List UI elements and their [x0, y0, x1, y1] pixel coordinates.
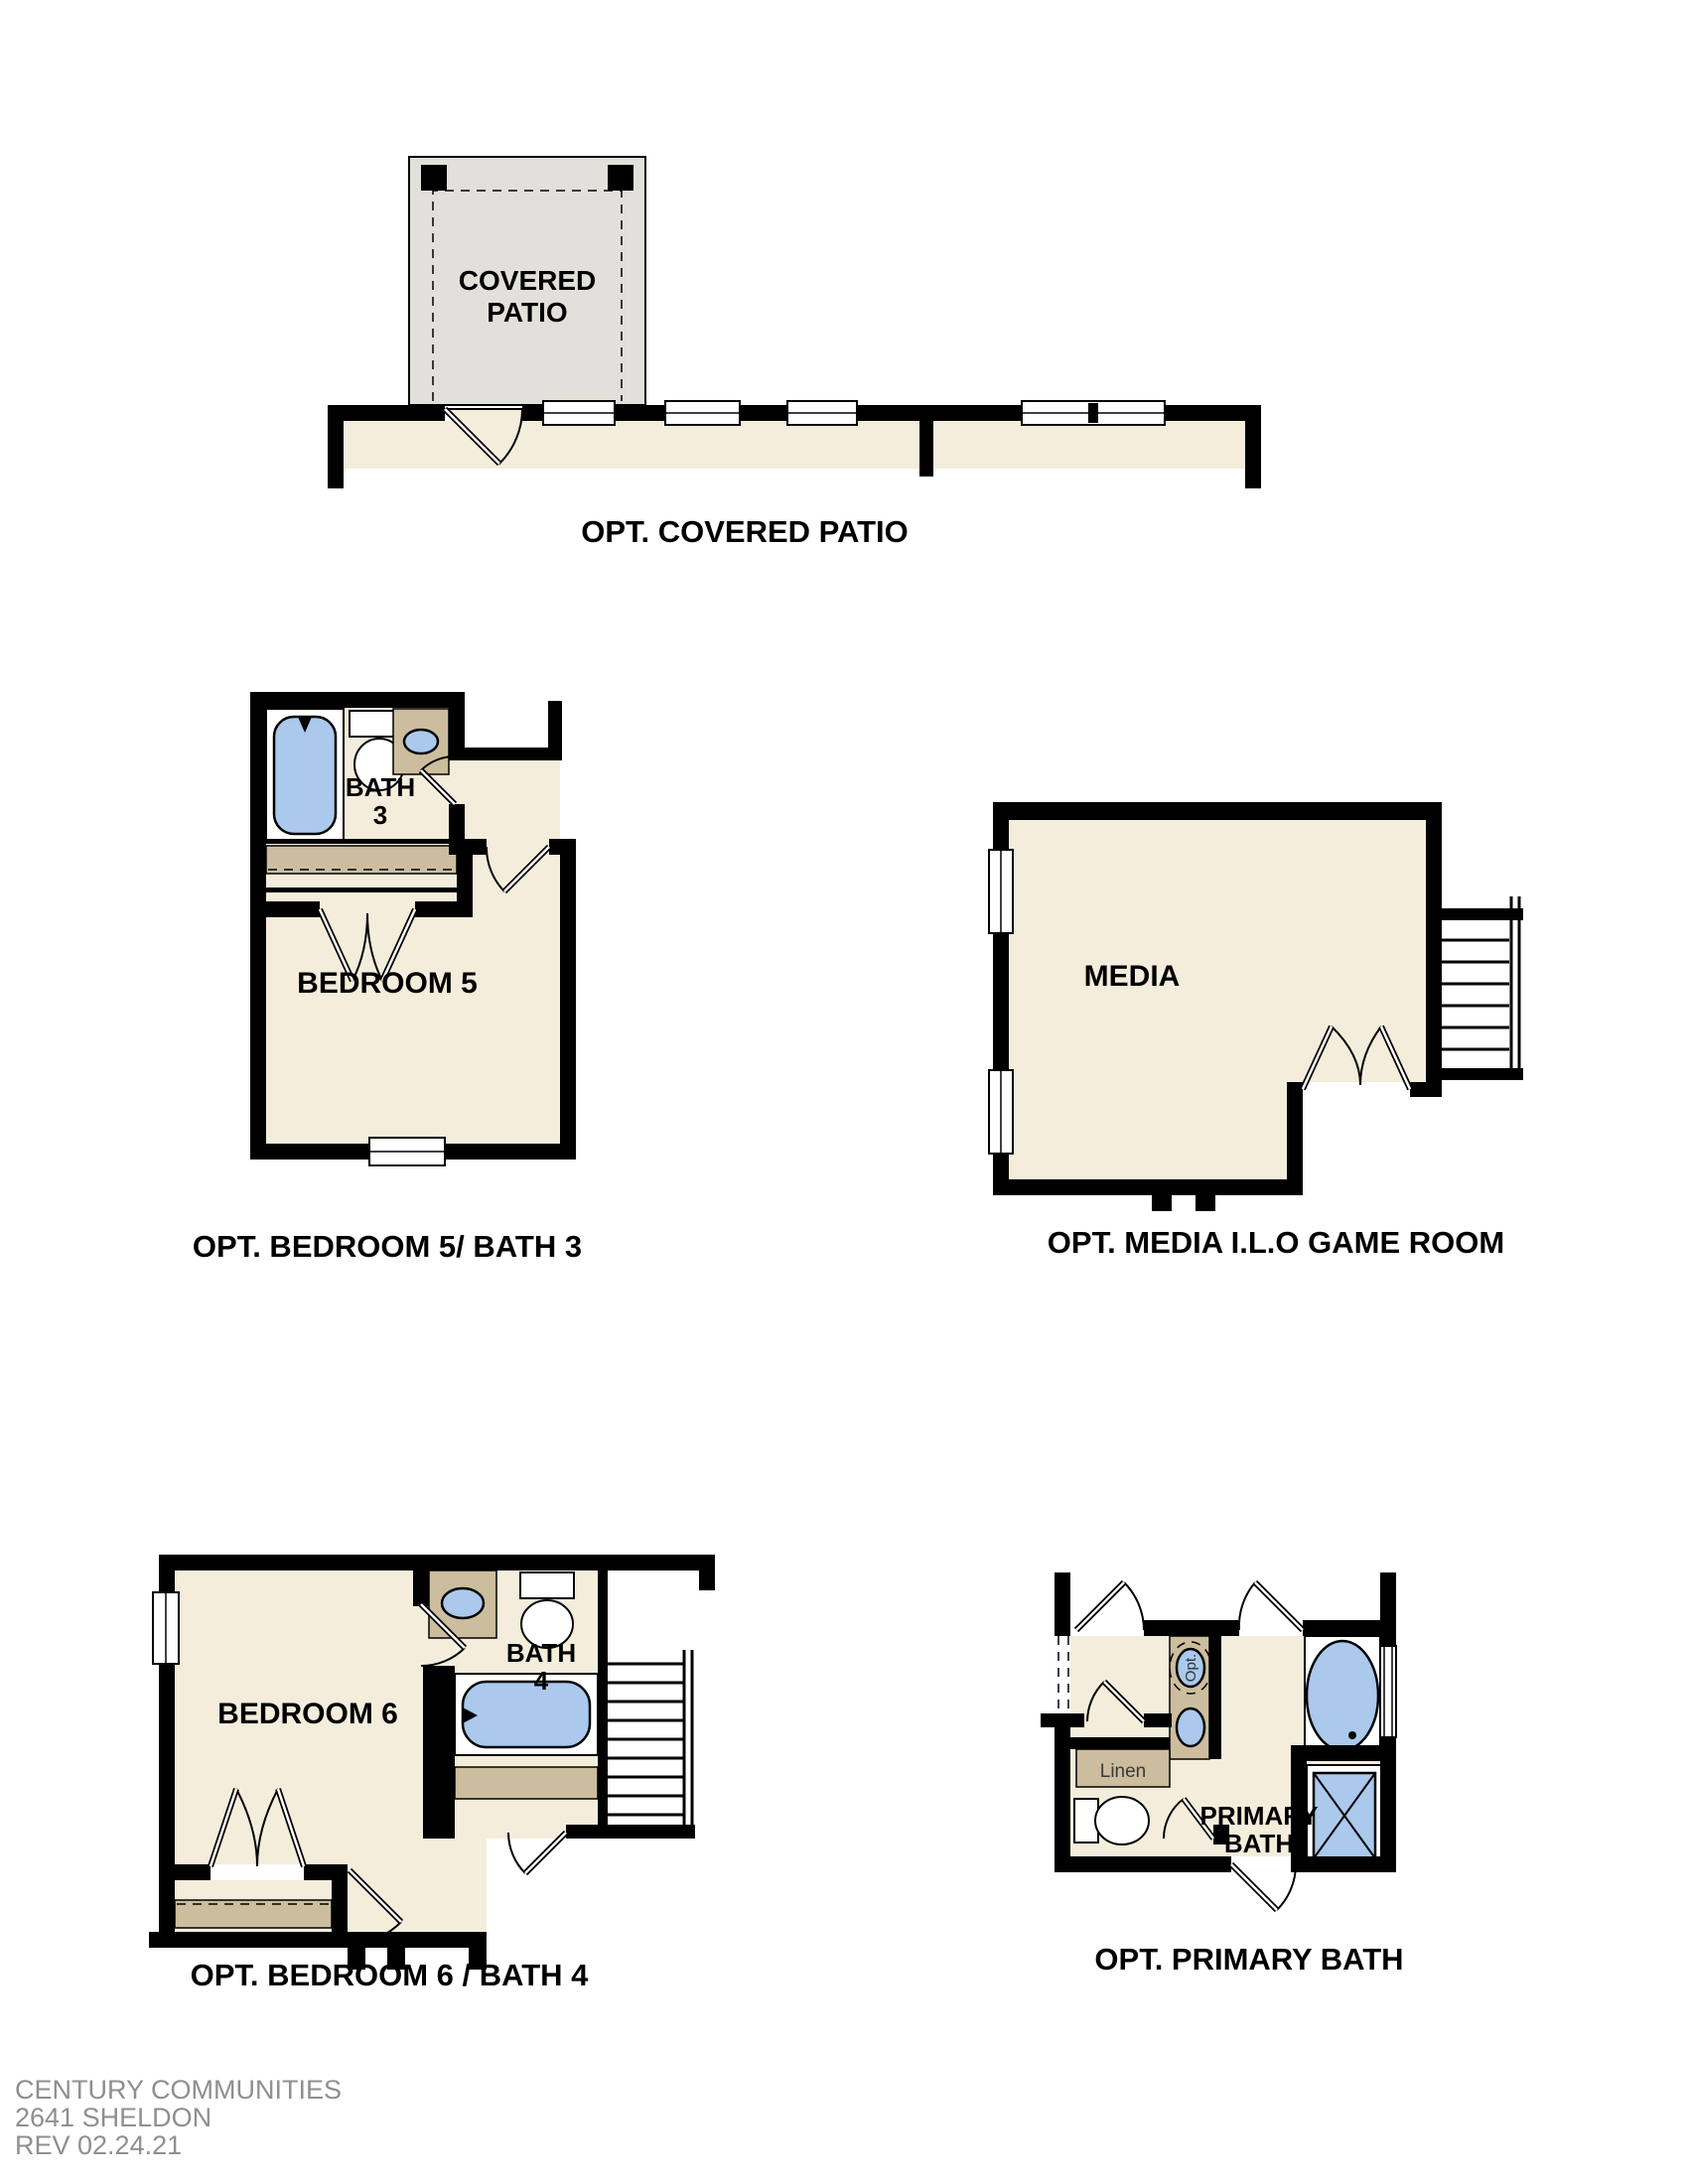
window — [543, 401, 615, 425]
opt-sink-label: Opt. — [1183, 1654, 1199, 1682]
window — [1380, 1646, 1396, 1737]
door-arc — [1239, 1582, 1303, 1630]
toilet-icon — [1074, 1797, 1149, 1844]
room-label-primary-bath-line2: BATH — [1224, 1829, 1294, 1858]
title-block: CENTURY COMMUNITIES 2641 SHELDON REV 02.… — [15, 2075, 342, 2160]
window — [787, 401, 857, 425]
sink-icon — [429, 1570, 496, 1638]
floor-plan-canvas: COVERED PATIO OPT. COVERED PATIO — [0, 0, 1688, 2184]
caption-covered-patio: OPT. COVERED PATIO — [581, 514, 909, 549]
bathtub-icon — [455, 1674, 598, 1755]
room-label-covered-patio-line2: PATIO — [487, 297, 567, 328]
patio-post-right — [608, 165, 633, 191]
window — [989, 1070, 1013, 1154]
wall-divider — [919, 405, 933, 477]
room-label-media: MEDIA — [1084, 960, 1181, 993]
stairs-icon — [608, 1650, 695, 1839]
window — [369, 1138, 445, 1165]
door-arc — [1231, 1864, 1296, 1910]
patio-post-left — [421, 165, 447, 191]
caption-bedroom5-bath3: OPT. BEDROOM 5/ BATH 3 — [193, 1229, 582, 1264]
stairs-icon — [1442, 896, 1523, 1080]
room-label-bedroom6: BEDROOM 6 — [217, 1698, 398, 1730]
caption-bedroom6-bath4: OPT. BEDROOM 6 / BATH 4 — [191, 1958, 590, 1992]
plan-number: 2641 SHELDON — [15, 2103, 211, 2132]
room-label-bedroom5: BEDROOM 5 — [297, 967, 478, 1000]
room-label-bath4-line1: BATH — [506, 1638, 576, 1668]
room-label-bath4-line2: 4 — [534, 1666, 549, 1696]
room-label-bath3-line2: 3 — [373, 800, 387, 830]
plan-primary-bath: Opt. Linen — [1041, 1572, 1404, 1977]
linen-label: Linen — [1100, 1761, 1147, 1782]
window — [153, 1592, 179, 1664]
bathtub-icon — [266, 709, 344, 842]
plan-media: MEDIA OPT. MEDIA I.L.O GAME ROOM — [989, 802, 1523, 1260]
window — [665, 401, 740, 425]
floor-plan-sheet: COVERED PATIO OPT. COVERED PATIO — [0, 0, 1688, 2184]
plan-bedroom5-bath3: BATH 3 BEDROOM 5 OPT. BEDROOM 5/ BATH 3 — [193, 692, 582, 1264]
window — [989, 850, 1013, 933]
sink-icon — [393, 709, 449, 774]
window — [1022, 401, 1165, 425]
room-label-bath3-line1: BATH — [346, 772, 415, 802]
room-label-covered-patio-line1: COVERED — [459, 265, 596, 296]
caption-media: OPT. MEDIA I.L.O GAME ROOM — [1048, 1225, 1504, 1260]
caption-primary-bath: OPT. PRIMARY BATH — [1094, 1942, 1403, 1977]
plumbing-wall — [423, 1666, 455, 1839]
plan-covered-patio: COVERED PATIO OPT. COVERED PATIO — [328, 157, 1261, 549]
plan-bedroom6-bath4: BEDROOM 6 BATH 4 OPT. BEDROOM 6 / BATH 4 — [149, 1555, 715, 1992]
revision-date: REV 02.24.21 — [15, 2130, 182, 2160]
sink-icon — [1177, 1708, 1204, 1746]
builder-name: CENTURY COMMUNITIES — [15, 2075, 342, 2105]
hall-floor — [348, 1864, 487, 1932]
floor-area — [1009, 820, 1426, 1179]
toilet-icon — [520, 1572, 574, 1648]
room-label-primary-bath-line1: PRIMARY — [1200, 1801, 1319, 1831]
door-arc — [1076, 1582, 1144, 1630]
door-arc — [508, 1833, 566, 1873]
wall-end-left — [328, 405, 344, 488]
wall-end-right — [1245, 405, 1261, 488]
bathtub-icon — [1305, 1636, 1380, 1759]
bath-counter — [455, 1767, 598, 1799]
